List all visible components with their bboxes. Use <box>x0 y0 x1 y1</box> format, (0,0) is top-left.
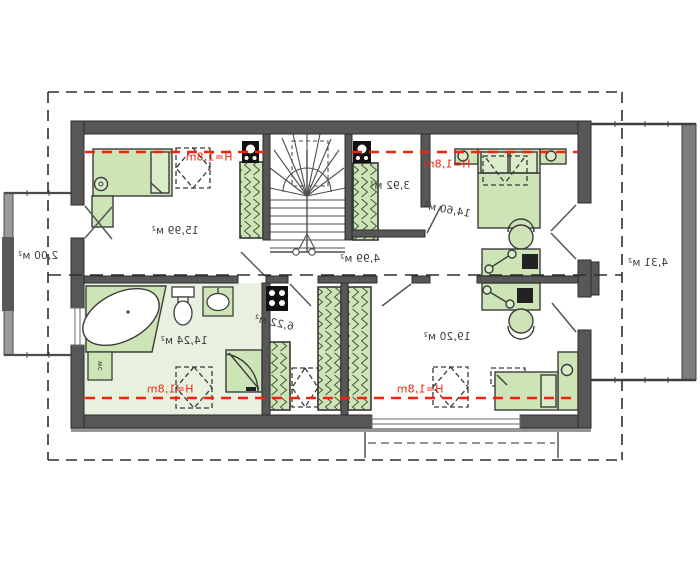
dormer-bottom <box>365 428 558 458</box>
balcony-right-structure <box>591 121 696 383</box>
height-limit-label: H=1,8m <box>186 151 233 164</box>
desk-chair-icon <box>482 283 540 339</box>
sink-icon <box>203 287 233 316</box>
shower-icon <box>226 350 262 392</box>
floor-plan-canvas: 15,99 м² 3,92 м² 14,60 м² 4,99 м² 14,24 … <box>0 0 700 575</box>
room-area-label: 15,99 м² <box>151 225 198 237</box>
room-area-label: 14,24 м² <box>160 335 207 347</box>
wardrobe-icon <box>353 163 378 240</box>
single-bed-icon <box>495 352 578 410</box>
staircase <box>270 134 345 255</box>
height-limit-label: H=1,8m <box>424 158 471 171</box>
double-bed-icon <box>455 149 566 228</box>
room-area-label: 2,00 м² <box>18 250 58 262</box>
room-area-label: 4,99 м² <box>340 253 380 265</box>
bathtub-icon <box>74 277 169 357</box>
height-limit-label: H=1,8m <box>147 383 194 396</box>
room-area-label: 3,92 м² <box>370 180 410 192</box>
balcony-left-structure <box>2 190 71 358</box>
toilet-icon <box>172 287 194 325</box>
height-limit-label: H=1,8m <box>397 383 444 396</box>
room-area-label: 4,31 м² <box>628 257 668 269</box>
wardrobe-icon <box>240 162 263 238</box>
room-area-label: 19,20 м² <box>423 331 470 343</box>
washer-label: wc <box>96 361 104 371</box>
floor-plan-drawing <box>0 0 700 575</box>
wardrobe-icon <box>348 287 371 410</box>
